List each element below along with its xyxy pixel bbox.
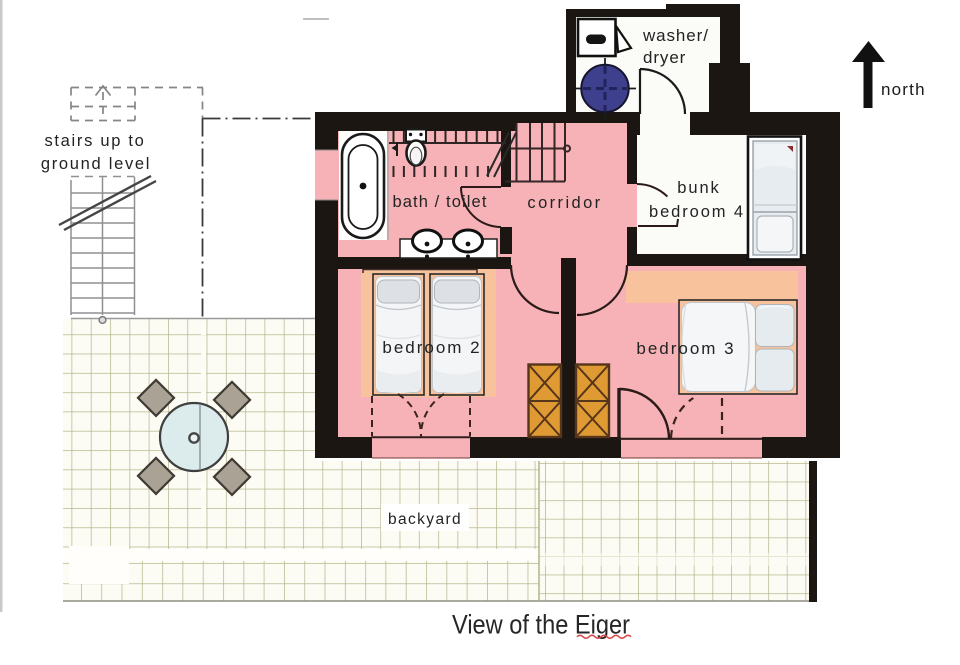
svg-text:bedroom 3: bedroom 3 — [636, 339, 735, 358]
svg-text:backyard: backyard — [388, 511, 462, 528]
svg-text:bath / toilet: bath / toilet — [392, 193, 487, 211]
svg-text:corridor: corridor — [527, 194, 602, 212]
svg-text:stairs up to: stairs up to — [44, 132, 145, 150]
svg-text:bunk: bunk — [677, 179, 720, 197]
svg-text:dryer: dryer — [643, 48, 686, 67]
svg-text:washer/: washer/ — [642, 26, 709, 45]
svg-text:north: north — [881, 80, 926, 99]
svg-text:ground level: ground level — [41, 155, 151, 173]
svg-text:bedroom 4: bedroom 4 — [649, 203, 745, 221]
svg-text:bedroom 2: bedroom 2 — [382, 338, 481, 357]
